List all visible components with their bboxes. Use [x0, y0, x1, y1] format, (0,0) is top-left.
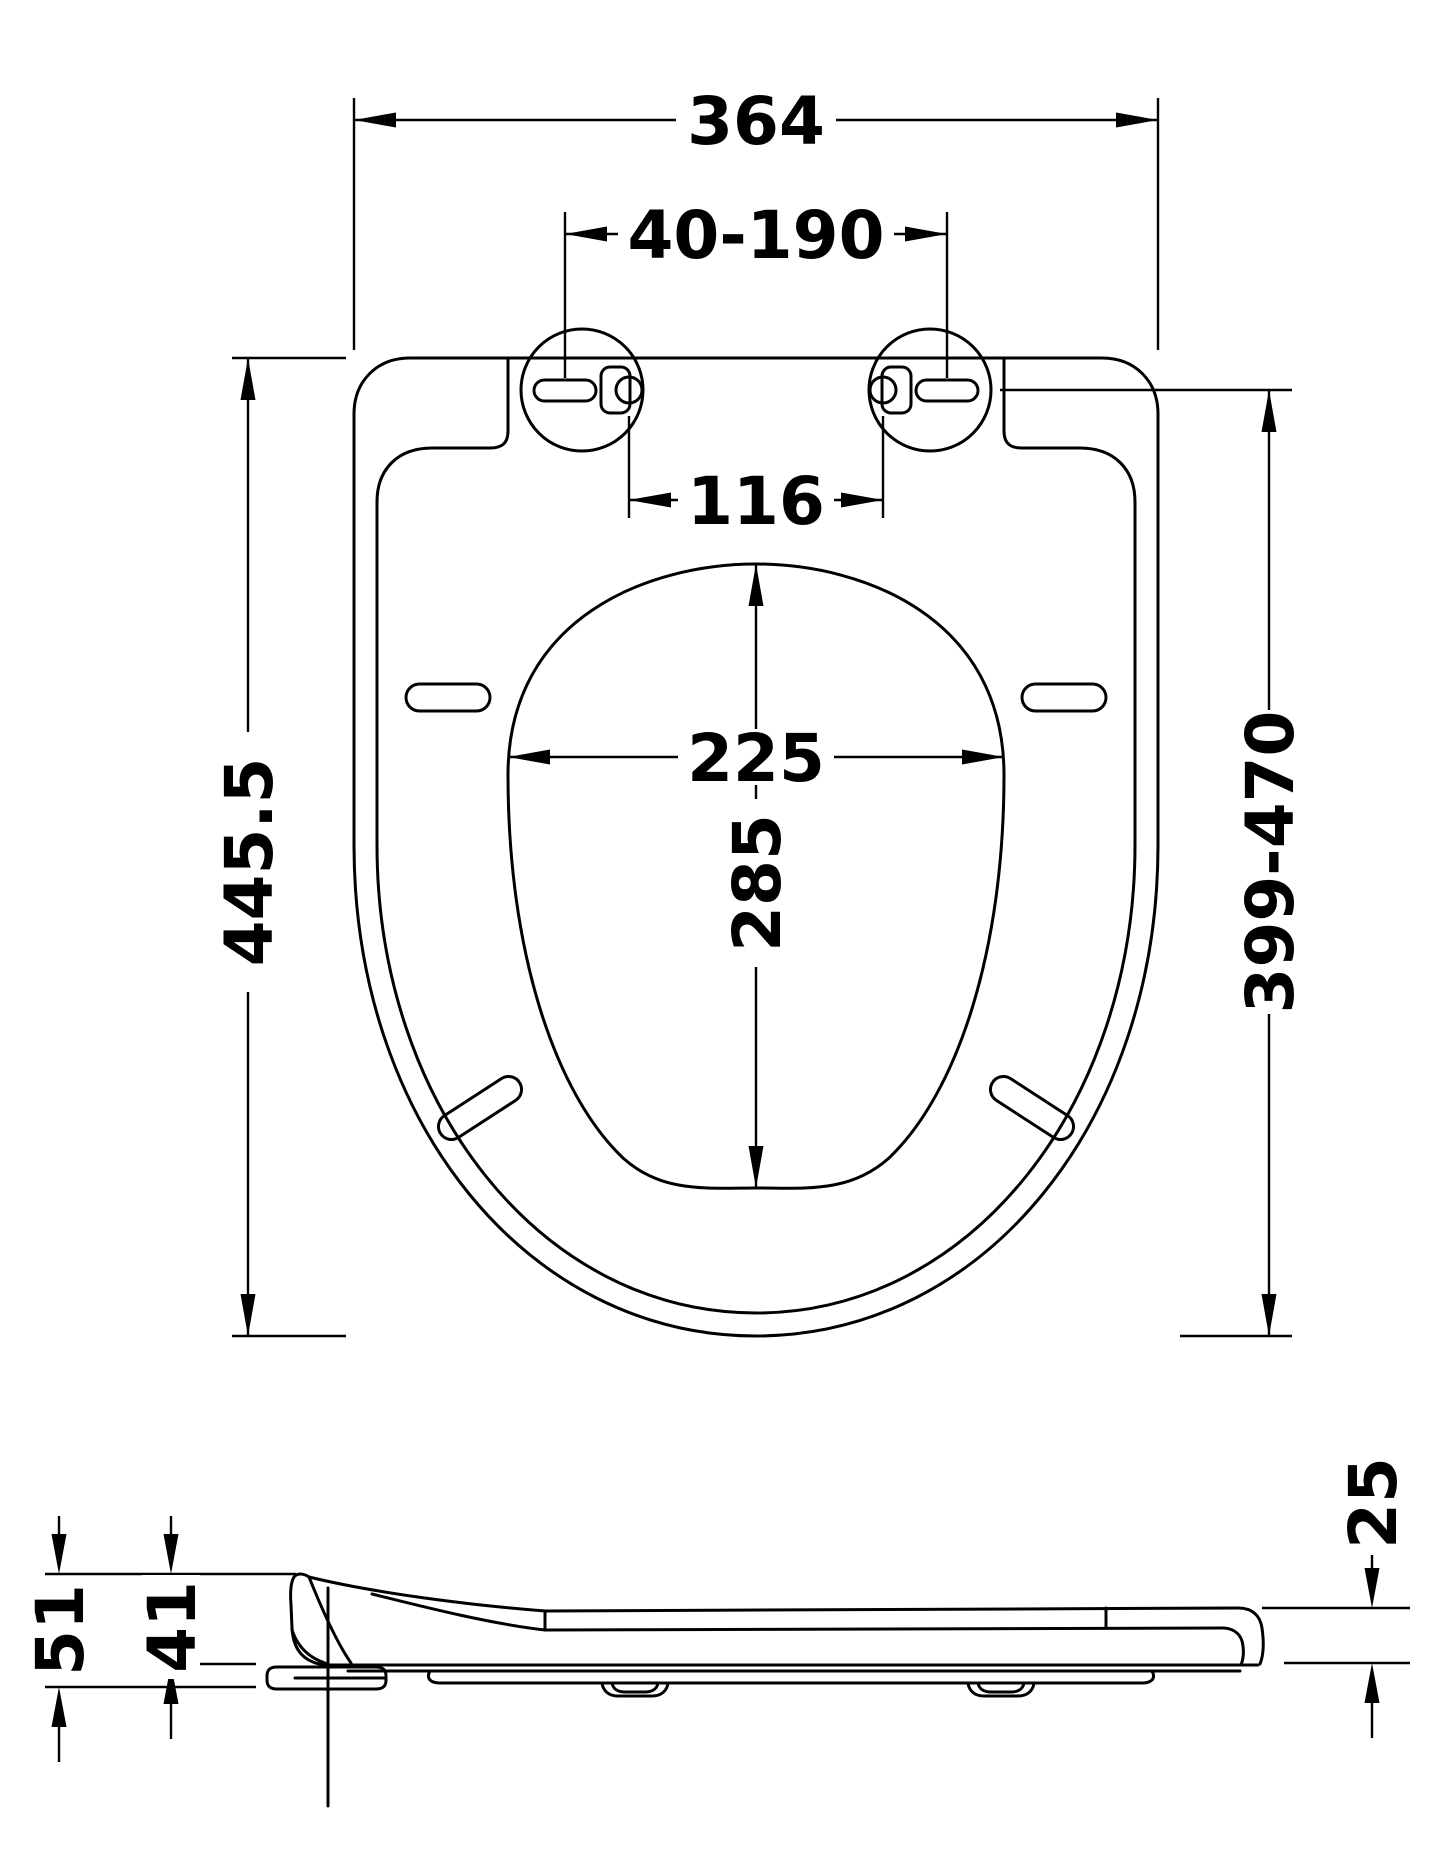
slot-lower-right: [986, 1071, 1079, 1144]
side-top-slope-inner: [372, 1594, 545, 1630]
dim-text-hinge-adjust-range: 40-190: [627, 197, 884, 274]
dim-text-seat-height-front: 41: [134, 1581, 211, 1673]
slot-lower-left: [434, 1071, 527, 1144]
technical-drawing-page: 364 40-190 116 225 285 445.5 399: [0, 0, 1445, 1870]
label-hinge-to-front-range: 399-470: [1232, 710, 1309, 1014]
side-nose-right-edge: [309, 1577, 351, 1663]
dim-text-overall-height-front: 51: [22, 1584, 99, 1676]
hinge-slot-left: [534, 380, 596, 401]
dim-text-bowl-width: 225: [687, 720, 825, 797]
dim-seat-thickness-rear: [1262, 1543, 1410, 1738]
side-view: [267, 1574, 1263, 1806]
dim-text-overall-width: 364: [687, 83, 825, 160]
dim-text-seat-thickness-rear: 25: [1335, 1457, 1412, 1549]
label-overall-width: 364: [676, 83, 836, 160]
technical-drawing-canvas: 364 40-190 116 225 285 445.5 399: [0, 0, 1445, 1870]
side-top-slope: [309, 1577, 545, 1611]
dim-text-hinge-to-front-range: 399-470: [1232, 711, 1309, 1014]
hinge-circle-right: [869, 329, 991, 451]
dim-text-bowl-length: 285: [719, 814, 796, 952]
side-under-pad: [428, 1671, 1153, 1683]
label-bowl-width: 225: [678, 720, 834, 797]
dim-text-hinge-hole-spacing: 116: [687, 463, 825, 540]
dimension-labels: 364 40-190 116 225 285 445.5 399: [22, 83, 1412, 1682]
dimensions-top-view: [232, 98, 1292, 1336]
label-overall-height-front: 51: [22, 1578, 99, 1682]
dim-text-overall-length: 445.5: [211, 758, 288, 967]
slot-upper-right: [1022, 684, 1106, 711]
hinge-slot-right: [916, 380, 978, 401]
slot-upper-left: [406, 684, 490, 711]
label-seat-thickness-rear: 25: [1335, 1451, 1412, 1555]
side-band-line: [545, 1628, 1224, 1630]
hinge-circle-left: [521, 329, 643, 451]
label-overall-length: 445.5: [211, 732, 288, 992]
label-seat-height-front: 41: [134, 1575, 211, 1679]
side-back-edge-inner: [1224, 1628, 1243, 1665]
dimensions-side-view: [45, 1516, 1410, 1762]
label-bowl-length: 285: [719, 799, 796, 967]
label-hinge-adjust-range: 40-190: [618, 197, 894, 274]
side-top-line: [545, 1608, 1238, 1611]
label-hinge-hole-spacing: 116: [678, 463, 834, 540]
